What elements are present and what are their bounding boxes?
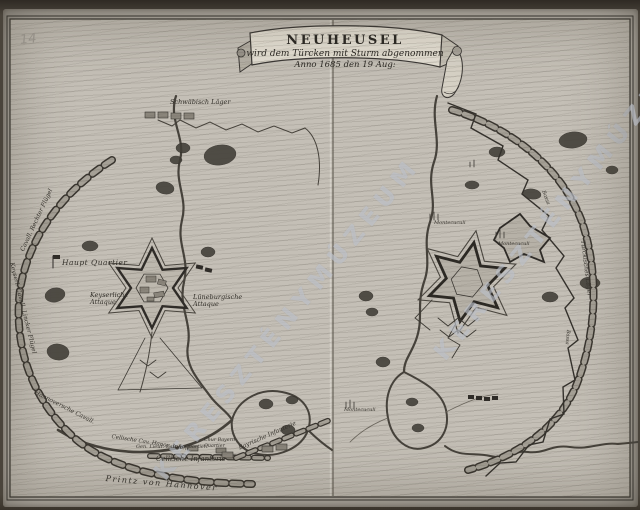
map-subtitle: wird dem Türcken mit Sturm abgenommen	[246, 49, 444, 59]
label-haupt-quartier: Haupt Quartier	[62, 259, 128, 268]
label-montecuculi: Montecuculi	[434, 221, 466, 227]
label-montecuculi: Montecuculi	[344, 408, 376, 414]
label-keyserliche-attaque: Keyserliche Attaque	[90, 292, 148, 307]
label-luneburgische-attaque: Lüneburgische Attaque	[193, 294, 255, 309]
engraved-map-plate	[0, 0, 640, 510]
label-montecuculi: Montecuculi	[498, 242, 530, 248]
label-bassa: Bassa	[563, 329, 570, 344]
pencil-page-number: 14	[19, 31, 37, 48]
map-dateline: Anno 1685 den 19 Aug:	[246, 60, 444, 70]
photographed-antique-map: KERESZTÉNYMÚZEUM KERESZTÉNYMÚZEUM NEUHEU…	[0, 0, 640, 510]
title-banner: NEUHEUSEL wird dem Türcken mit Sturm abg…	[246, 33, 444, 70]
label-gen-lieut-quartier: Gen. Lieut. Cavall. Quartier	[136, 445, 206, 451]
label-schwaebisch-lager: Schwäbisch Läger	[170, 99, 231, 106]
map-title: NEUHEUSEL	[246, 33, 444, 48]
label-cellische-infanterie: Cellische Infanterie	[156, 455, 226, 463]
